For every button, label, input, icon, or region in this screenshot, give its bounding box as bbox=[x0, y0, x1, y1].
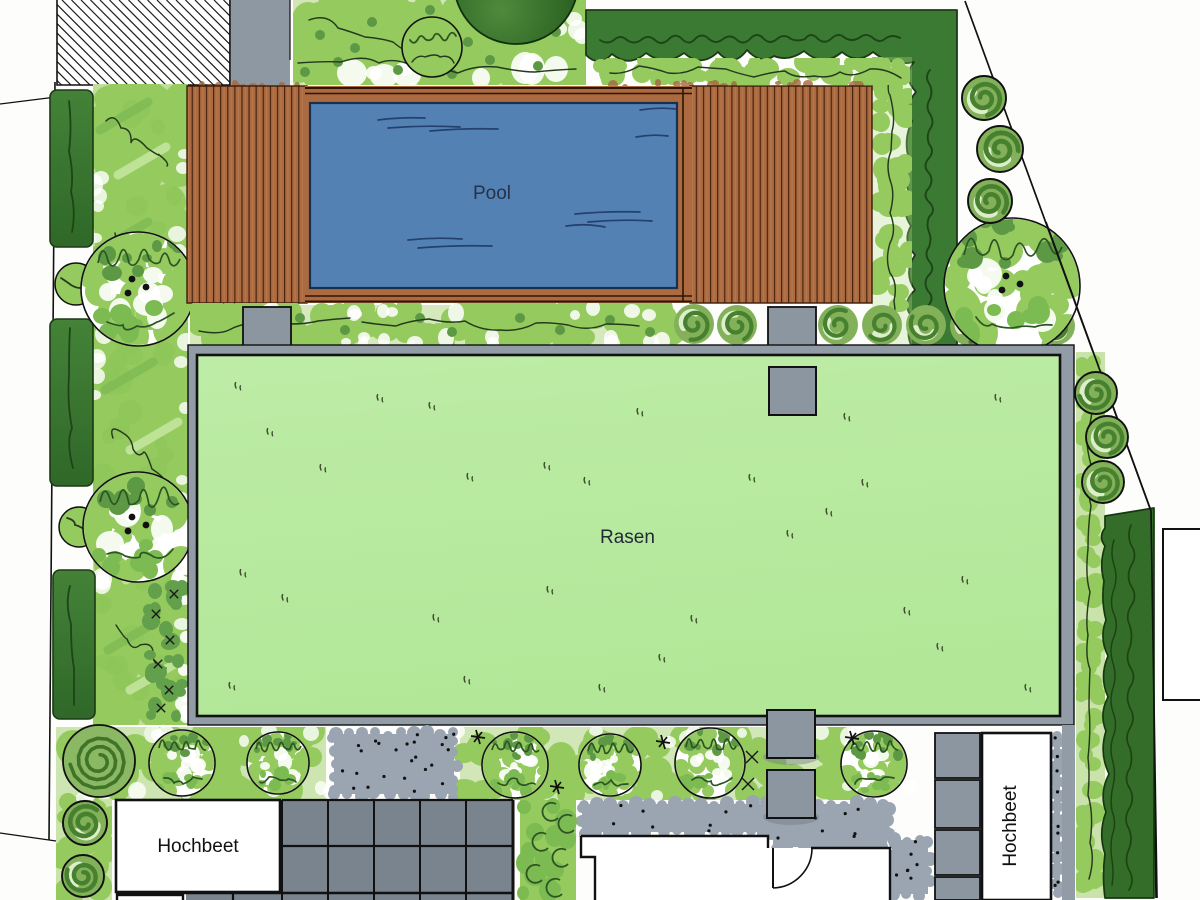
svg-text:Hochbeet: Hochbeet bbox=[157, 836, 239, 857]
svg-text:Rasen: Rasen bbox=[600, 527, 655, 548]
svg-text:Pool: Pool bbox=[473, 183, 511, 204]
svg-text:Hochbeet: Hochbeet bbox=[1000, 785, 1021, 867]
